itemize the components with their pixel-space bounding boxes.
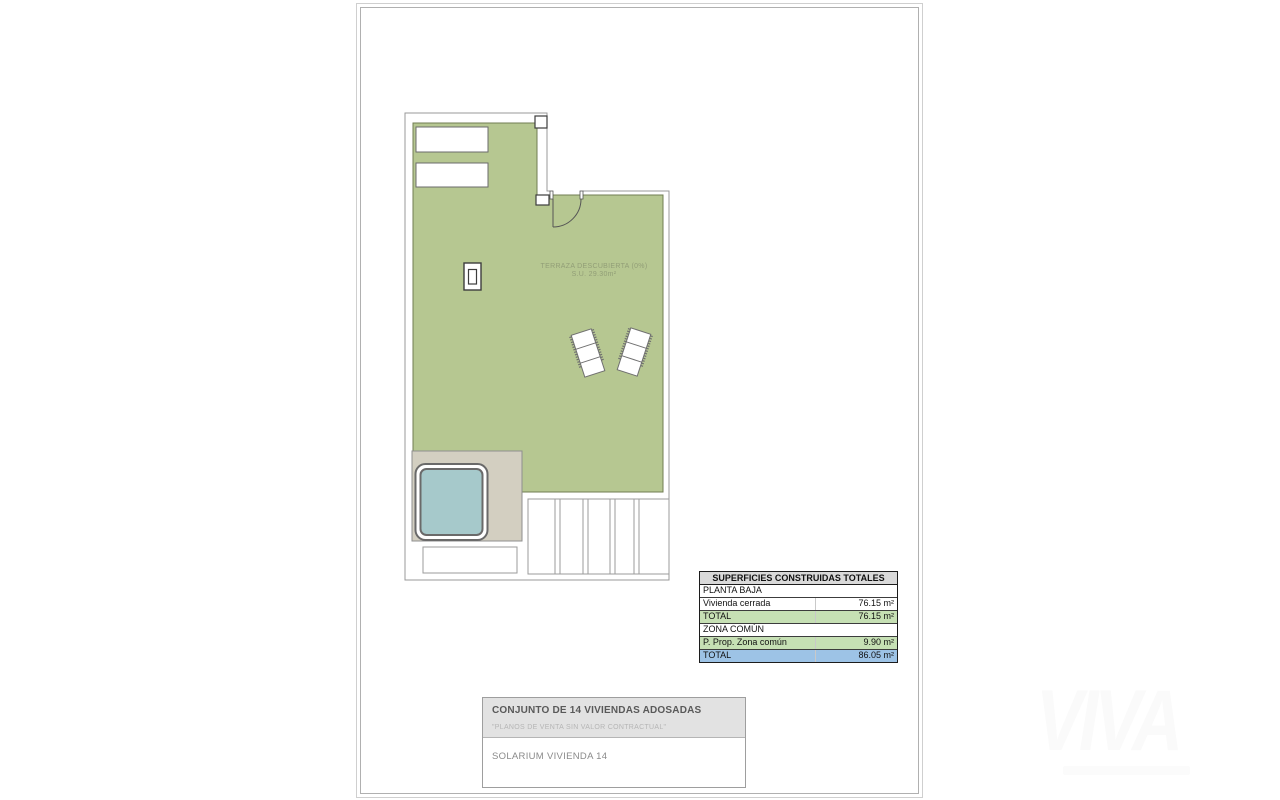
table-row: PLANTA BAJA — [700, 585, 897, 598]
project-title: CONJUNTO DE 14 VIVIENDAS ADOSADAS — [492, 705, 736, 716]
jacuzzi-pool — [416, 464, 488, 540]
door-jamb-left — [550, 191, 553, 199]
table-row: ZONA COMÚN — [700, 624, 897, 637]
room-label-line2: S.U. 29.30m² — [572, 271, 617, 278]
row-value: 9.90 m² — [815, 637, 897, 649]
row-label: Vivienda cerrada — [700, 598, 815, 610]
floor-plan: TERRAZA DESCUBIERTA (0%) S.U. 29.30m² — [390, 105, 680, 590]
row-value: 76.15 m² — [815, 598, 897, 610]
disclaimer-note: "PLANOS DE VENTA SIN VALOR CONTRACTUAL" — [492, 724, 736, 731]
table-row: TOTAL 76.15 m² — [700, 611, 897, 624]
drawing-title: SOLARIUM VIVIENDA 14 — [492, 751, 736, 762]
title-block-body: SOLARIUM VIVIENDA 14 — [483, 738, 745, 762]
row-label: P. Prop. Zona común — [700, 637, 815, 649]
areas-table-header: SUPERFICIES CONSTRUIDAS TOTALES — [700, 572, 897, 585]
watermark-logo: VIVA — [1036, 678, 1179, 764]
row-label: TOTAL — [700, 611, 815, 623]
row-label: PLANTA BAJA — [700, 585, 816, 597]
title-block-header: CONJUNTO DE 14 VIVIENDAS ADOSADAS "PLANO… — [483, 698, 745, 738]
table-row: P. Prop. Zona común 9.90 m² — [700, 637, 897, 650]
door-jamb-right — [580, 191, 583, 199]
row-value — [816, 624, 897, 636]
row-value: 86.05 m² — [815, 650, 897, 662]
room-label-line1: TERRAZA DESCUBIERTA (0%) — [541, 263, 648, 270]
pergola-rect-1 — [416, 127, 488, 152]
table-row: Vivienda cerrada 76.15 m² — [700, 598, 897, 611]
row-label: ZONA COMÚN — [700, 624, 816, 636]
row-label: TOTAL — [700, 650, 815, 662]
title-block: CONJUNTO DE 14 VIVIENDAS ADOSADAS "PLANO… — [482, 697, 746, 788]
table-row: TOTAL 86.05 m² — [700, 650, 897, 662]
row-value — [816, 585, 897, 597]
pergola-rect-2 — [416, 163, 488, 187]
skylight — [464, 263, 481, 290]
stairs — [528, 499, 669, 574]
wall-column-top — [535, 116, 547, 128]
wall-column-bottom — [536, 195, 549, 205]
row-value: 76.15 m² — [815, 611, 897, 623]
watermark-tagline-bar — [1063, 766, 1190, 775]
platform-step — [423, 547, 517, 573]
areas-table: SUPERFICIES CONSTRUIDAS TOTALES PLANTA B… — [699, 571, 898, 663]
